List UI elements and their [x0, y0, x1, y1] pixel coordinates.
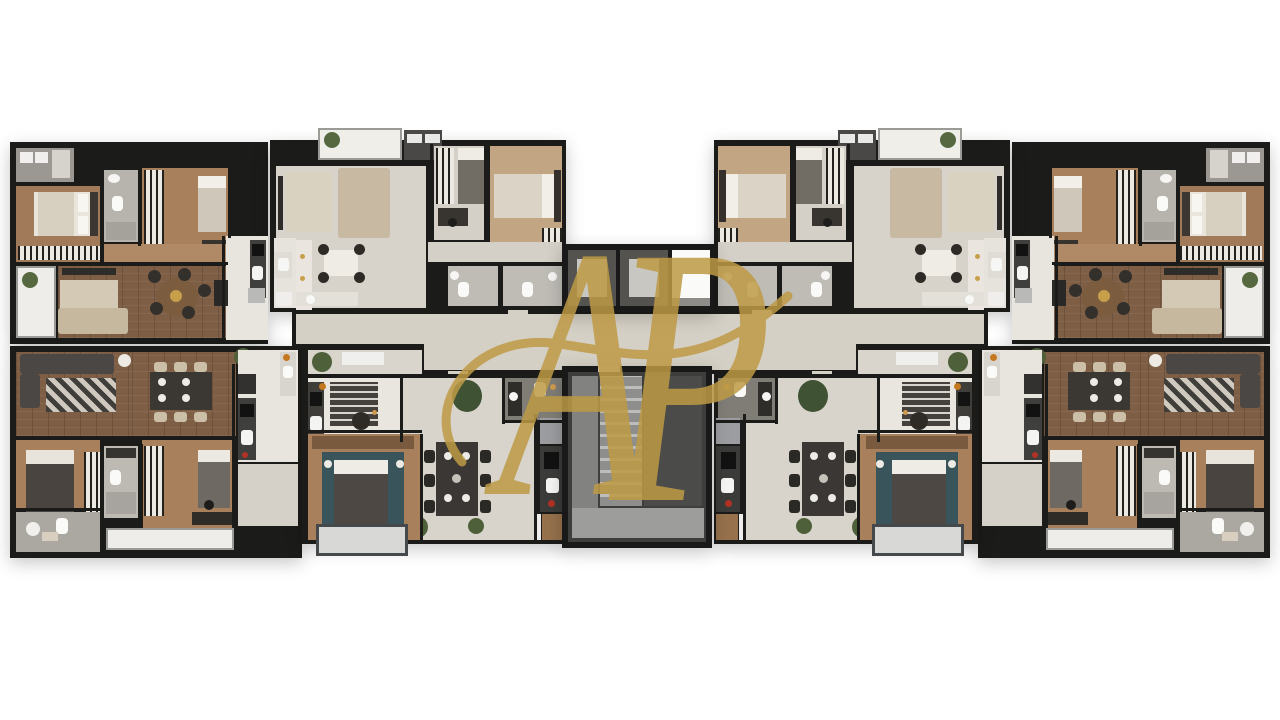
unit-door-gap-bottom — [448, 371, 468, 374]
pendant-lamp-mirror — [975, 254, 980, 259]
dining-chair — [198, 284, 211, 297]
single-bed-blanket — [198, 188, 226, 232]
plate — [444, 452, 452, 460]
master-bed-pillow — [334, 460, 388, 474]
plate — [182, 378, 190, 386]
bathroom-sink — [450, 271, 459, 280]
ac-unit-mirror — [858, 134, 873, 143]
bath-rug-mirror — [1222, 532, 1238, 541]
plate — [182, 394, 190, 402]
wall — [222, 236, 225, 340]
single-bed-pillow-mirror — [796, 148, 822, 160]
dining-chair-mirror — [1119, 270, 1132, 283]
bathroom-sink-mirror — [723, 272, 732, 281]
single-bed-blanket — [198, 462, 230, 508]
dining-chair-mirror — [1069, 284, 1082, 297]
pendant-lamp-mirror — [975, 276, 980, 281]
dishwasher — [248, 288, 265, 303]
geometric-rug — [46, 378, 116, 412]
master-bed-blanket-mirror — [892, 474, 946, 526]
wall-mirror — [847, 144, 850, 242]
master-bed-headboard — [90, 192, 98, 236]
bathroom-sink-mirror — [762, 392, 771, 401]
dining-chair — [148, 270, 161, 283]
corner-sofa — [20, 374, 40, 408]
kitchen-sink-mirror — [1017, 266, 1028, 280]
plate-mirror — [828, 452, 836, 460]
fridge — [238, 374, 256, 394]
hallway-floor — [104, 244, 228, 264]
washing-machine-mirror — [1232, 152, 1245, 163]
living-rug-mirror — [1162, 280, 1220, 310]
bathroom-sink-mirror — [1160, 174, 1172, 183]
nightstand-mirror — [876, 460, 884, 468]
wall — [76, 148, 79, 184]
fruit-bowl-mirror — [954, 383, 961, 390]
living-rug-mirror — [948, 172, 994, 232]
wall-mirror — [718, 262, 834, 265]
wall-mirror — [1176, 508, 1264, 511]
rear-balcony-floor — [316, 524, 408, 556]
corner-sofa-mirror — [1240, 374, 1260, 408]
breakfast-table-mirror — [922, 250, 956, 276]
vanity — [106, 448, 136, 458]
shower — [106, 492, 136, 514]
wall — [502, 378, 505, 424]
counter-sink — [306, 295, 315, 304]
wall-mirror — [777, 266, 780, 306]
hallway-floor-mirror — [1052, 244, 1176, 264]
entry-floor-mirror — [982, 464, 1042, 526]
bedroom2-wardrobe — [144, 446, 164, 516]
toilet-mirror — [1157, 196, 1168, 211]
dining-chair — [154, 412, 167, 422]
tv-panel-mirror — [997, 176, 1002, 230]
bathroom-sink-mirror — [821, 271, 830, 280]
wall-mirror — [854, 374, 974, 377]
floor-lamp-mirror — [903, 410, 908, 415]
wardrobe — [84, 452, 100, 514]
wall-mirror — [1202, 182, 1264, 185]
hall-floor-mirror — [718, 242, 852, 262]
kettle — [548, 500, 555, 507]
wall — [100, 166, 103, 246]
toilet-mirror — [747, 282, 758, 297]
master-bed-blanket — [38, 192, 74, 236]
dining-chair — [154, 362, 167, 372]
tv-console-mirror — [1164, 268, 1218, 275]
wall — [502, 420, 564, 423]
hall-floor — [428, 242, 562, 262]
wall — [16, 262, 228, 265]
dining-chair — [424, 500, 435, 513]
dining-chair — [174, 412, 187, 422]
bathroom-sink — [108, 174, 120, 183]
desk-chair — [204, 500, 214, 510]
dining-chair — [182, 306, 195, 319]
single-bed-pillow — [198, 450, 230, 462]
rear-balcony-floor-mirror — [1046, 528, 1174, 550]
cooktop — [252, 244, 264, 256]
office-wardrobe-mirror — [826, 148, 844, 204]
master-bed-pillow — [542, 174, 554, 218]
master-wardrobe-mirror — [1180, 246, 1262, 260]
desk-mirror — [1048, 512, 1088, 525]
stool — [318, 244, 329, 255]
ac-unit-mirror — [840, 134, 855, 143]
shower-mirror — [1144, 222, 1174, 240]
wall-mirror — [1137, 444, 1140, 528]
wall — [306, 374, 426, 377]
stair-flight-dark — [644, 376, 702, 506]
single-bed-pillow — [458, 148, 484, 160]
unit-door-gap-top-mirror — [752, 310, 772, 314]
table-centerpiece — [170, 290, 182, 302]
dining-chair — [424, 450, 435, 463]
corner-sofa — [20, 354, 114, 374]
stool-mirror — [915, 244, 926, 255]
stair-landing — [572, 508, 704, 538]
ac-unit — [425, 134, 440, 143]
laundry-counter-mirror — [1210, 150, 1228, 178]
wall — [232, 364, 235, 462]
floor-plan: A P — [0, 0, 1280, 720]
wall — [534, 414, 537, 540]
toilet — [458, 282, 469, 297]
corridor-end-wall-west — [292, 309, 296, 348]
balcony-plant — [324, 132, 340, 148]
cooktop-mirror — [958, 392, 970, 406]
corridor-end-wall-east — [984, 309, 988, 348]
wall — [486, 144, 489, 242]
elevator-cab — [629, 259, 659, 297]
toilet — [110, 470, 121, 485]
cooktop — [310, 392, 322, 406]
rear-balcony-floor-mirror — [872, 524, 964, 556]
dishwasher-mirror — [1015, 288, 1032, 303]
dining-chair — [194, 362, 207, 372]
stool — [354, 244, 365, 255]
desk-chair-mirror — [823, 218, 832, 227]
corridor-floor — [296, 314, 984, 344]
master-bed-blanket — [334, 474, 388, 526]
floor-lamp — [372, 410, 377, 415]
bedroom2-wardrobe-mirror — [1116, 446, 1136, 516]
dining-chair-mirror — [1073, 412, 1086, 422]
dining-chair — [480, 450, 491, 463]
washing-machine-mirror — [988, 292, 1004, 306]
fruit-bowl — [283, 354, 290, 361]
corner-sofa-mirror — [1166, 354, 1260, 374]
wall-mirror — [857, 434, 860, 540]
kitchen-sink-mirror — [987, 366, 997, 378]
kettle — [242, 452, 248, 458]
dining-chair-mirror — [845, 474, 856, 487]
wall — [500, 266, 503, 306]
wall-mirror — [858, 430, 974, 433]
wall — [272, 162, 404, 165]
dining-chair-mirror — [1073, 362, 1086, 372]
master-bed-pillow-mirror — [892, 460, 946, 474]
table-centerpiece — [452, 474, 461, 483]
master-bed-pillow-mirror — [726, 174, 738, 218]
living-rug — [286, 172, 332, 232]
toilet-mirror — [811, 282, 822, 297]
wall-mirror — [1049, 146, 1052, 238]
wardrobe-low — [312, 436, 414, 449]
dining-chair — [480, 500, 491, 513]
toilet-mirror — [1159, 470, 1170, 485]
corridor-wall-bottom-west — [296, 344, 424, 348]
wood-counter-mirror — [716, 514, 738, 540]
master-bed-headboard — [554, 170, 561, 222]
washing-machine-mirror — [1247, 152, 1260, 163]
bathroom-sink — [509, 392, 518, 401]
wardrobe-mirror — [1180, 452, 1196, 514]
washing-machine — [35, 152, 48, 163]
desk-chair — [448, 218, 457, 227]
plant — [468, 518, 484, 534]
wardrobe-low-mirror — [866, 436, 968, 449]
master-bed-pillow-mirror — [1192, 194, 1202, 212]
side-table-mirror — [1149, 354, 1162, 367]
master-bed-pillow — [26, 450, 74, 464]
plate — [158, 378, 166, 386]
plant — [452, 380, 482, 412]
wall — [16, 436, 232, 439]
single-bed-blanket — [458, 160, 484, 204]
desk — [192, 512, 232, 525]
kitchen-sink-mirror — [1027, 430, 1039, 445]
kitchen-sink — [252, 266, 263, 280]
nightstand-mirror — [948, 460, 956, 468]
wall — [446, 262, 562, 265]
dining-chair-mirror — [1089, 268, 1102, 281]
kitchen-sink — [546, 478, 559, 493]
dining-chair-mirror — [1113, 362, 1126, 372]
wall-mirror — [1201, 148, 1204, 184]
plant-mirror — [948, 352, 968, 372]
wall-mirror — [1048, 436, 1264, 439]
sofa-mirror — [1152, 308, 1222, 334]
plate-mirror — [1114, 378, 1122, 386]
kitchen-column-sink-mirror — [991, 258, 1002, 271]
dining-chair-mirror — [789, 474, 800, 487]
plate — [462, 452, 470, 460]
wall-sconce-mirror — [724, 384, 730, 390]
dining-chair-mirror — [1117, 302, 1130, 315]
dining-chair — [424, 474, 435, 487]
dining-chair — [150, 302, 163, 315]
wall-mirror — [791, 144, 794, 242]
dining-chair — [480, 474, 491, 487]
stool — [354, 272, 365, 283]
master-bed-pillow-mirror — [1206, 450, 1254, 464]
kettle-mirror — [1032, 452, 1038, 458]
plate-mirror — [1090, 394, 1098, 402]
plant-mirror — [796, 518, 812, 534]
plant — [312, 352, 332, 372]
ac-unit — [407, 134, 422, 143]
wall-sconce — [550, 384, 556, 390]
kitchen-column-sink — [278, 258, 289, 271]
plate — [462, 494, 470, 502]
master-bed-pillow — [78, 216, 88, 234]
toilet — [522, 282, 533, 297]
kettle-mirror — [725, 500, 732, 507]
fruit-bowl — [319, 383, 326, 390]
plate-mirror — [828, 494, 836, 502]
dining-chair-mirror — [1093, 362, 1106, 372]
entry-floor — [238, 464, 298, 526]
master-bed-blanket — [494, 174, 542, 218]
sideboard — [342, 352, 384, 365]
table-centerpiece-mirror — [1098, 290, 1110, 302]
nightstand — [324, 460, 332, 468]
shower — [106, 222, 136, 240]
stool-mirror — [915, 272, 926, 283]
dining-chair — [178, 268, 191, 281]
table-centerpiece-mirror — [819, 474, 828, 483]
stair-door-gap — [598, 366, 620, 372]
single-bed-blanket-mirror — [1054, 188, 1082, 232]
laundry-counter — [52, 150, 70, 178]
single-bed-pillow — [198, 176, 226, 188]
geometric-rug-mirror — [1164, 378, 1234, 412]
side-table — [118, 354, 131, 367]
kitchen-sink-mirror — [958, 416, 970, 431]
plate-mirror — [1090, 378, 1098, 386]
wall — [420, 434, 423, 540]
tv-panel — [278, 176, 283, 230]
plate-mirror — [810, 494, 818, 502]
bath-rug — [42, 532, 58, 541]
single-bed-blanket-mirror — [796, 160, 822, 204]
wall — [16, 508, 104, 511]
wall-mirror — [716, 420, 778, 423]
balcony-plant-mirror — [1242, 272, 1258, 288]
wood-counter — [542, 514, 564, 540]
dining-chair — [194, 412, 207, 422]
wall-mirror — [775, 378, 778, 424]
dining-chair-mirror — [789, 500, 800, 513]
kitchen-sink — [241, 430, 253, 445]
master-bed-headboard-mirror — [1182, 192, 1190, 236]
wall-mirror — [876, 162, 1008, 165]
elevator-cab — [577, 259, 607, 297]
desk-chair-mirror — [1066, 500, 1076, 510]
cooktop-mirror — [721, 452, 736, 469]
vanity-mirror — [1144, 448, 1174, 458]
dining-chair-mirror — [1113, 412, 1126, 422]
wall — [430, 144, 433, 242]
bathroom-sink — [26, 522, 40, 536]
bathroom-sink — [548, 272, 557, 281]
wall-mirror — [743, 414, 746, 540]
sofa — [58, 308, 128, 334]
wall-mirror — [1055, 236, 1058, 340]
master-bed-blanket-mirror — [738, 174, 786, 218]
plate — [158, 394, 166, 402]
kitchen-sink — [283, 366, 293, 378]
cooktop-mirror — [1026, 404, 1040, 417]
wall — [138, 166, 141, 246]
wall — [306, 430, 422, 433]
single-bed-pillow-mirror — [1054, 176, 1082, 188]
wall — [228, 146, 231, 238]
master-wardrobe — [18, 246, 100, 260]
tv-console — [62, 268, 116, 275]
sofa — [338, 168, 390, 238]
pantry-unit — [214, 280, 228, 306]
dining-chair-mirror — [789, 450, 800, 463]
master-bed-pillow-mirror — [1192, 216, 1202, 234]
wall — [100, 444, 103, 552]
counter-sink-mirror — [965, 295, 974, 304]
dining-chair — [174, 362, 187, 372]
dining-chair-mirror — [845, 450, 856, 463]
washing-machine — [20, 152, 33, 163]
master-bed-blanket — [26, 464, 74, 512]
rear-balcony-floor — [106, 528, 234, 550]
kitchen-bottom-counter-mirror — [922, 292, 984, 306]
stair-treads — [600, 376, 642, 506]
breakfast-table — [324, 250, 358, 276]
dining-chair-mirror — [1085, 306, 1098, 319]
corridor-wall-bottom-east — [856, 344, 984, 348]
toilet-mirror — [734, 382, 746, 397]
plate — [444, 494, 452, 502]
wall — [140, 444, 143, 528]
cooktop — [544, 452, 559, 469]
master-bed-blanket-mirror — [1206, 464, 1254, 512]
pendant-lamp — [300, 254, 305, 259]
office-wardrobe — [436, 148, 454, 204]
plant-mirror — [798, 380, 828, 412]
plate-mirror — [1114, 394, 1122, 402]
armchair-mirror — [910, 412, 928, 430]
wall-mirror — [1052, 262, 1264, 265]
shower-mirror — [1144, 492, 1174, 514]
cooktop — [240, 404, 254, 417]
sideboard-mirror — [896, 352, 938, 365]
wall-mirror — [1139, 166, 1142, 246]
balcony-plant-mirror — [940, 132, 956, 148]
dining-chair-mirror — [1093, 412, 1106, 422]
wall-mirror — [1177, 444, 1180, 552]
wall-mirror — [1045, 364, 1048, 462]
kitchen-sink-mirror — [721, 478, 734, 493]
toilet — [112, 196, 123, 211]
unit-door-gap-top — [508, 310, 528, 314]
cooktop-mirror — [1016, 244, 1028, 256]
master-bed-blanket-mirror — [1206, 192, 1242, 236]
armchair — [352, 412, 370, 430]
master-bed-headboard-mirror — [719, 170, 726, 222]
stool-mirror — [951, 272, 962, 283]
master-bed-pillow — [78, 194, 88, 212]
pendant-lamp — [300, 276, 305, 281]
unit-door-gap-bottom-mirror — [812, 371, 832, 374]
wall-mirror — [1177, 166, 1180, 246]
stool-mirror — [951, 244, 962, 255]
toilet — [534, 382, 546, 397]
single-bed-pillow-mirror — [1050, 450, 1082, 462]
stool — [318, 272, 329, 283]
bathroom-sink-mirror — [1240, 522, 1254, 536]
nightstand — [396, 460, 404, 468]
sofa-mirror — [890, 168, 942, 238]
